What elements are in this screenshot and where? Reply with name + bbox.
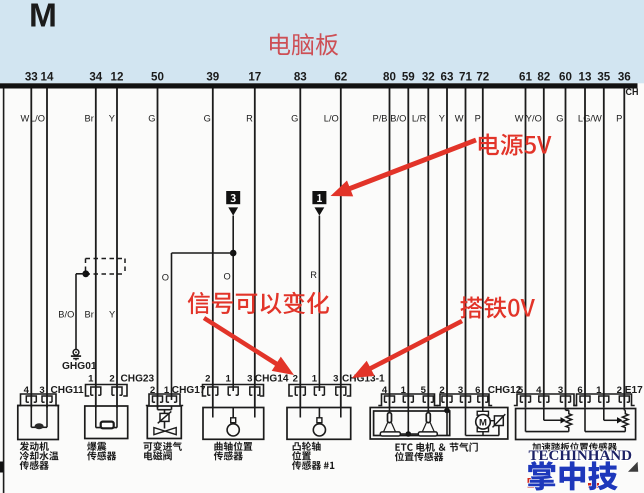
svg-text:L/O: L/O [30, 113, 45, 123]
svg-text:35: 35 [597, 71, 610, 84]
svg-text:R: R [310, 270, 317, 280]
svg-text:14: 14 [41, 71, 54, 84]
svg-text:1: 1 [164, 385, 170, 396]
svg-text:2: 2 [205, 374, 210, 385]
svg-text:Y: Y [109, 113, 115, 123]
svg-text:R: R [246, 113, 253, 123]
svg-text:M: M [479, 417, 487, 428]
svg-text:39: 39 [206, 71, 219, 84]
svg-text:3: 3 [558, 385, 563, 396]
svg-text:O: O [223, 272, 230, 282]
svg-text:13: 13 [579, 71, 592, 84]
svg-text:33: 33 [25, 71, 38, 84]
svg-text:G/W: G/W [583, 113, 602, 123]
svg-text:Y: Y [109, 310, 115, 320]
svg-text:83: 83 [294, 71, 307, 84]
svg-text:1: 1 [312, 374, 318, 385]
svg-text:2: 2 [150, 385, 155, 396]
svg-text:3: 3 [39, 385, 44, 396]
svg-text:CHG17: CHG17 [172, 385, 206, 396]
svg-text:17: 17 [248, 71, 261, 84]
svg-text:59: 59 [402, 71, 415, 84]
svg-text:32: 32 [422, 71, 435, 84]
svg-text:CHG11: CHG11 [51, 385, 84, 396]
svg-text:B/O: B/O [390, 113, 406, 123]
svg-text:2: 2 [293, 374, 298, 385]
svg-text:Y: Y [439, 113, 445, 123]
svg-text:M: M [29, 0, 57, 35]
svg-text:72: 72 [476, 71, 489, 84]
svg-text:2: 2 [109, 374, 114, 385]
svg-text:E17: E17 [625, 385, 643, 396]
svg-text:P/B: P/B [373, 113, 388, 123]
svg-text:CHG14: CHG14 [255, 374, 289, 385]
svg-text:71: 71 [459, 71, 472, 84]
svg-text:5: 5 [518, 385, 524, 396]
svg-text:63: 63 [441, 71, 454, 84]
svg-text:12: 12 [111, 71, 124, 84]
svg-text:L/R: L/R [412, 113, 427, 123]
svg-text:82: 82 [537, 71, 550, 84]
svg-text:Br: Br [85, 310, 94, 320]
svg-text:34: 34 [89, 71, 102, 84]
svg-text:36: 36 [618, 71, 631, 84]
svg-text:1: 1 [401, 385, 407, 396]
svg-text:3: 3 [333, 374, 338, 385]
svg-text:G: G [291, 113, 298, 123]
svg-text:2: 2 [439, 385, 444, 396]
svg-text:1: 1 [226, 374, 232, 385]
svg-text:G: G [556, 113, 563, 123]
svg-text:CHG23: CHG23 [121, 374, 155, 385]
svg-text:W: W [455, 113, 464, 123]
svg-text:W: W [515, 113, 524, 123]
svg-text:2: 2 [617, 385, 622, 396]
svg-text:B/O: B/O [58, 310, 74, 320]
svg-text:4: 4 [536, 385, 542, 396]
svg-text:W: W [21, 113, 30, 123]
svg-text:G: G [148, 113, 155, 123]
svg-text:P: P [616, 113, 622, 123]
svg-text:6: 6 [475, 385, 480, 396]
svg-text:G: G [204, 113, 211, 123]
svg-text:61: 61 [519, 71, 532, 84]
svg-text:3: 3 [458, 385, 463, 396]
svg-text:3: 3 [247, 374, 252, 385]
svg-text:Br: Br [85, 113, 94, 123]
svg-text:P: P [475, 113, 481, 123]
svg-text:62: 62 [334, 71, 347, 84]
svg-text:CH: CH [626, 87, 639, 97]
svg-text:GHG01: GHG01 [62, 361, 97, 372]
svg-text:1: 1 [596, 385, 602, 396]
svg-text:4: 4 [382, 385, 388, 396]
svg-text:80: 80 [383, 71, 396, 84]
svg-text:60: 60 [559, 71, 572, 84]
svg-text:Y/O: Y/O [526, 113, 542, 123]
svg-text:4: 4 [24, 385, 30, 396]
svg-text:50: 50 [151, 71, 164, 84]
svg-text:1: 1 [88, 374, 94, 385]
svg-text:O: O [162, 273, 169, 283]
svg-text:5: 5 [421, 385, 427, 396]
svg-text:L/O: L/O [324, 113, 339, 123]
svg-text:6: 6 [577, 385, 582, 396]
